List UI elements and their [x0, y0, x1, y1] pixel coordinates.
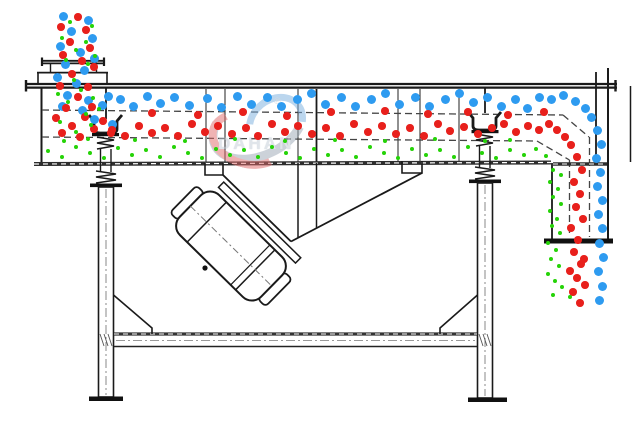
right-support-leg	[468, 183, 507, 402]
left-spring-assembly	[89, 115, 122, 187]
discharge-chute	[544, 68, 613, 241]
right-spring-assembly	[468, 112, 501, 183]
screen-cover	[25, 80, 617, 92]
base-beam	[114, 295, 478, 347]
left-support-leg	[89, 187, 123, 401]
screen-box	[34, 72, 631, 237]
feed-inlet	[37, 58, 108, 85]
screen-partitions	[206, 89, 459, 163]
vibrating-screen-diagram: ® DAHAN	[0, 0, 638, 428]
diagram-linework	[0, 0, 638, 428]
right-gusset	[440, 295, 478, 334]
vibration-motor	[164, 170, 308, 313]
left-gusset	[114, 295, 153, 334]
motor-bolt	[202, 265, 207, 270]
